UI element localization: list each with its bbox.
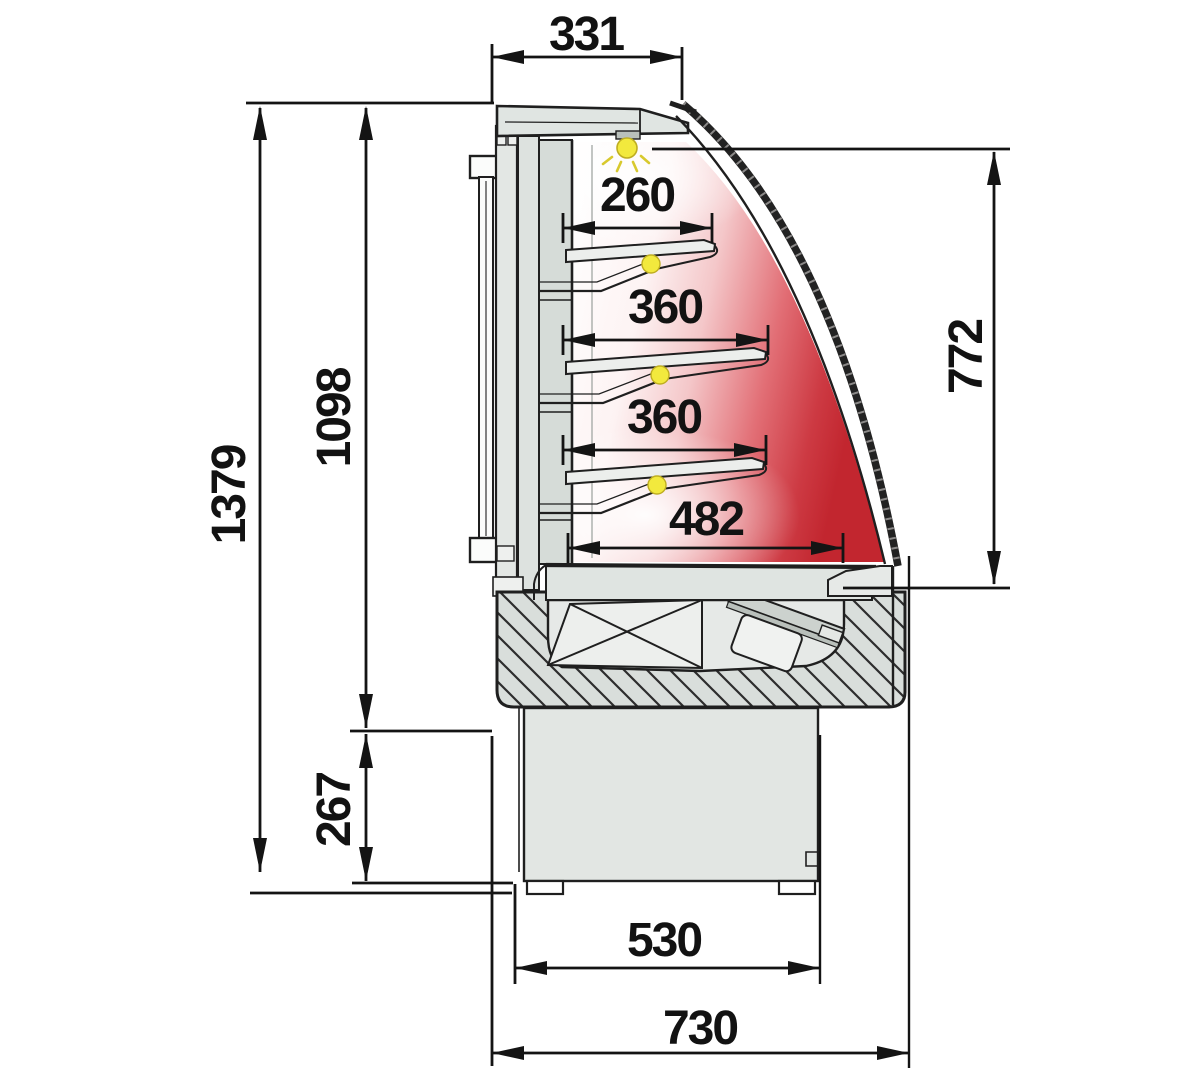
- dim-label-shelf-lower-depth: 360: [627, 391, 701, 444]
- canopy: [497, 106, 688, 139]
- lower-cabinet: [519, 708, 818, 894]
- drawing-canvas: 331 1379 1098 267: [0, 0, 1200, 1080]
- shelf-3-light-icon: [648, 476, 666, 494]
- dim-label-deck-depth: 482: [669, 493, 743, 546]
- dim-label-shelf-middle-depth: 360: [628, 281, 702, 334]
- display-case-section-drawing: 331 1379 1098 267: [0, 0, 1200, 1080]
- base-cross-brace: [548, 600, 702, 668]
- dim-display-height: 1098: [308, 106, 492, 731]
- dim-label-overall-height: 1379: [203, 445, 256, 544]
- display-deck: [534, 565, 892, 600]
- dim-label-display-height: 1098: [308, 367, 361, 467]
- dim-label-front-glass-height: 772: [940, 320, 993, 394]
- dim-label-overall-depth: 730: [663, 1002, 737, 1055]
- shelf-1-light-icon: [642, 255, 660, 273]
- dim-label-plinth-height: 267: [308, 773, 361, 847]
- dim-label-top-depth: 331: [549, 8, 624, 61]
- dim-label-shelf-top-depth: 260: [600, 169, 674, 222]
- dim-label-plinth-width: 530: [627, 914, 701, 967]
- shelf-2-light-icon: [651, 366, 669, 384]
- cabinet-foot-left: [527, 881, 563, 894]
- dim-top-depth: 331: [492, 8, 682, 104]
- dim-plinth-height: 267: [308, 734, 513, 883]
- cabinet-foot-right: [779, 881, 815, 894]
